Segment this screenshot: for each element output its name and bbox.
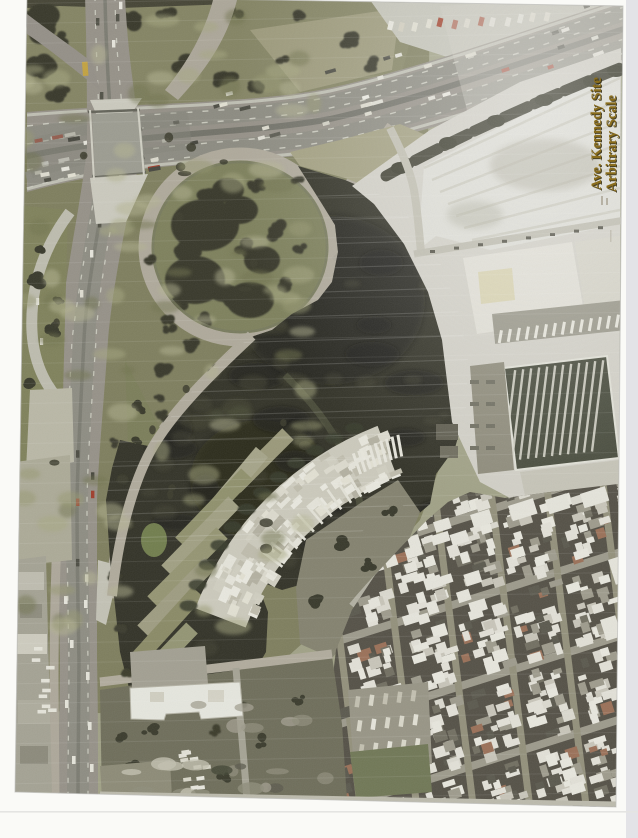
svg-text:Ave. Kennedy Site: Ave. Kennedy Site [589,77,605,190]
svg-text:Arbitrary Scale: Arbitrary Scale [604,94,620,192]
